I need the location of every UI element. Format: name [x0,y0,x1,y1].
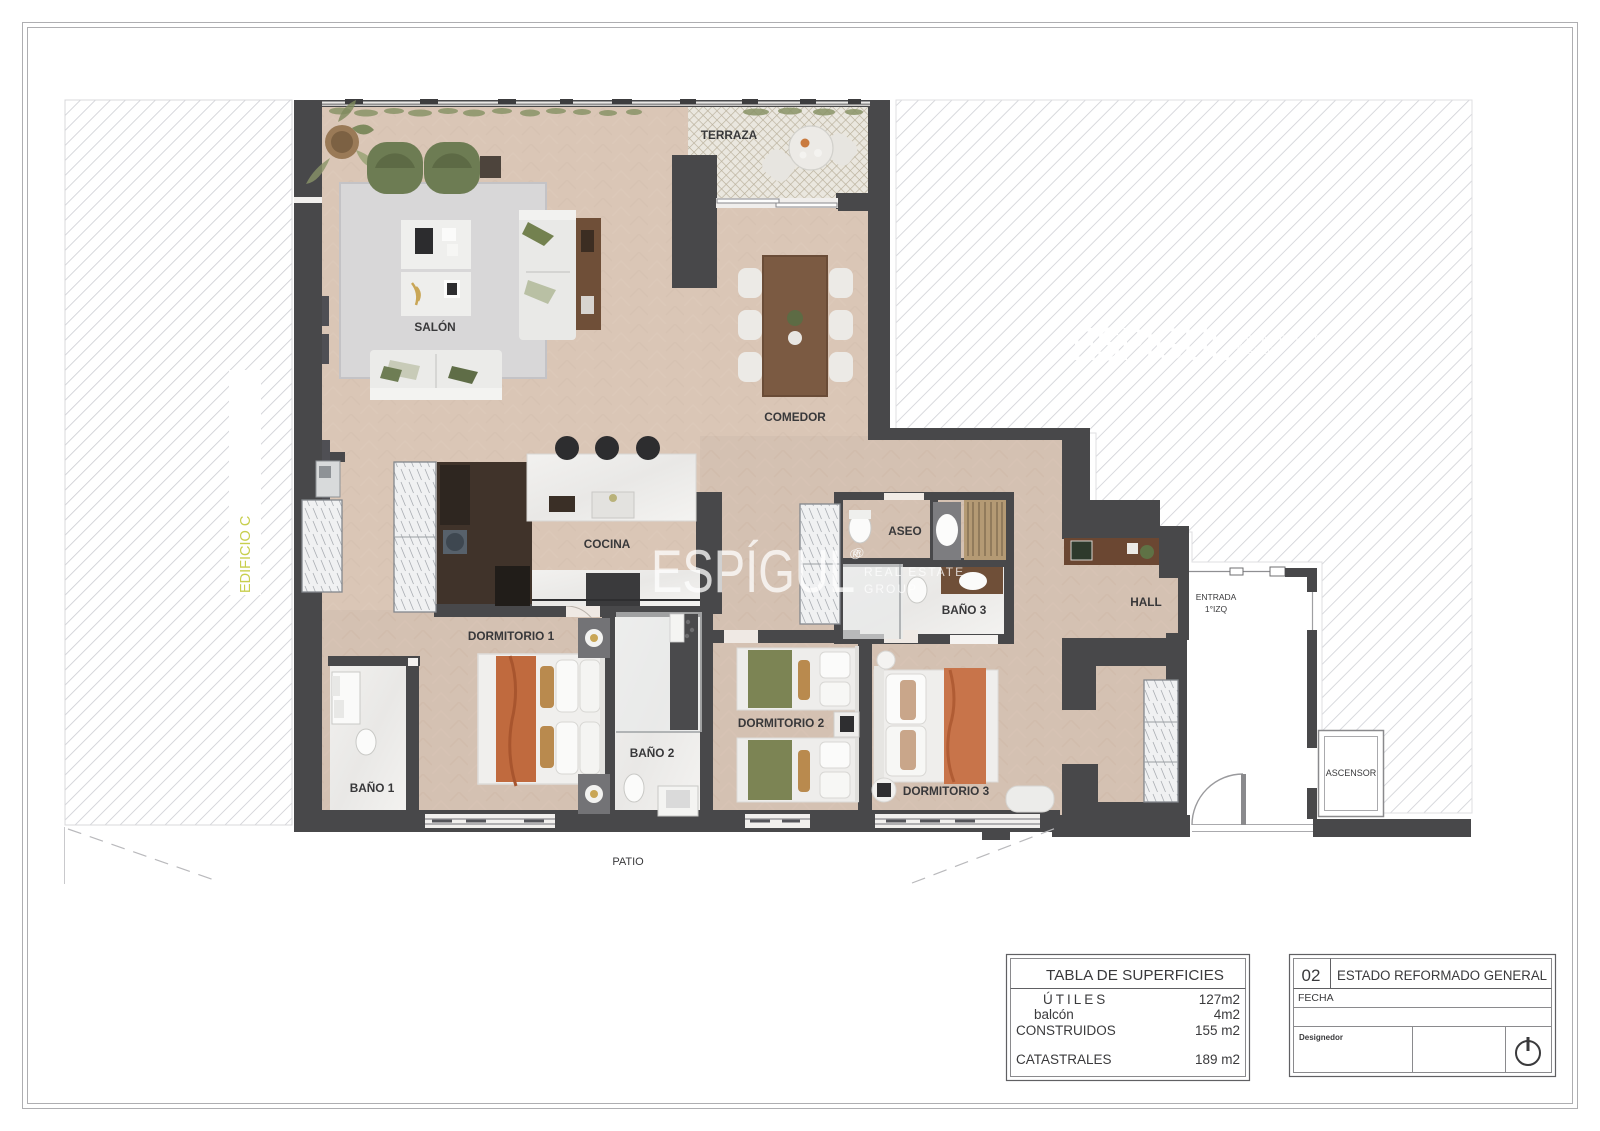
svg-text:1°IZQ: 1°IZQ [1205,604,1228,614]
svg-text:FECHA: FECHA [1298,992,1334,1004]
svg-text:CATASTRALES: CATASTRALES [1016,1052,1112,1067]
svg-text:127m2: 127m2 [1199,992,1240,1007]
svg-text:4m2: 4m2 [1214,1007,1240,1022]
svg-text:BAÑO 3: BAÑO 3 [942,603,987,617]
svg-text:189 m2: 189 m2 [1195,1052,1240,1067]
svg-text:ASCENSOR: ASCENSOR [1326,768,1377,778]
svg-text:COMEDOR: COMEDOR [764,410,826,424]
svg-text:ÚTILES: ÚTILES [1043,992,1108,1007]
svg-text:REAL ESTATE: REAL ESTATE [1246,334,1322,344]
svg-text:PATIO: PATIO [612,856,644,868]
svg-text:Designedor: Designedor [1299,1033,1343,1042]
svg-text:balcón: balcón [1034,1007,1074,1022]
svg-text:EDIFICIO C: EDIFICIO C [238,516,254,593]
svg-text:BAÑO 2: BAÑO 2 [630,746,675,760]
svg-text:GROUP: GROUP [864,582,918,596]
svg-text:DORMITORIO 2: DORMITORIO 2 [738,716,825,730]
svg-text:®: ® [850,546,861,562]
svg-text:BAÑO 1: BAÑO 1 [350,781,395,795]
svg-text:DORMITORIO 3: DORMITORIO 3 [903,784,990,798]
svg-text:GROUP: GROUP [1246,346,1287,356]
svg-text:ESPÍGUL: ESPÍGUL [1072,318,1230,370]
svg-text:TERRAZA: TERRAZA [701,128,758,142]
svg-text:DORMITORIO 1: DORMITORIO 1 [468,629,555,643]
svg-text:CONSTRUIDOS: CONSTRUIDOS [1016,1023,1116,1038]
svg-text:®: ® [1236,342,1244,353]
svg-text:02: 02 [1302,966,1321,985]
svg-text:ENTRADA: ENTRADA [1196,592,1237,602]
svg-text:155 m2: 155 m2 [1195,1023,1240,1038]
svg-text:REAL ESTATE: REAL ESTATE [864,565,965,579]
svg-text:ESPÍGUL: ESPÍGUL [651,538,855,605]
svg-text:COCINA: COCINA [584,537,631,551]
svg-text:TABLA DE SUPERFICIES: TABLA DE SUPERFICIES [1046,967,1224,984]
svg-text:SALÓN: SALÓN [414,320,455,334]
svg-text:ESTADO REFORMADO GENERAL: ESTADO REFORMADO GENERAL [1337,968,1547,983]
svg-text:ASEO: ASEO [888,524,921,538]
svg-text:HALL: HALL [1130,595,1161,609]
